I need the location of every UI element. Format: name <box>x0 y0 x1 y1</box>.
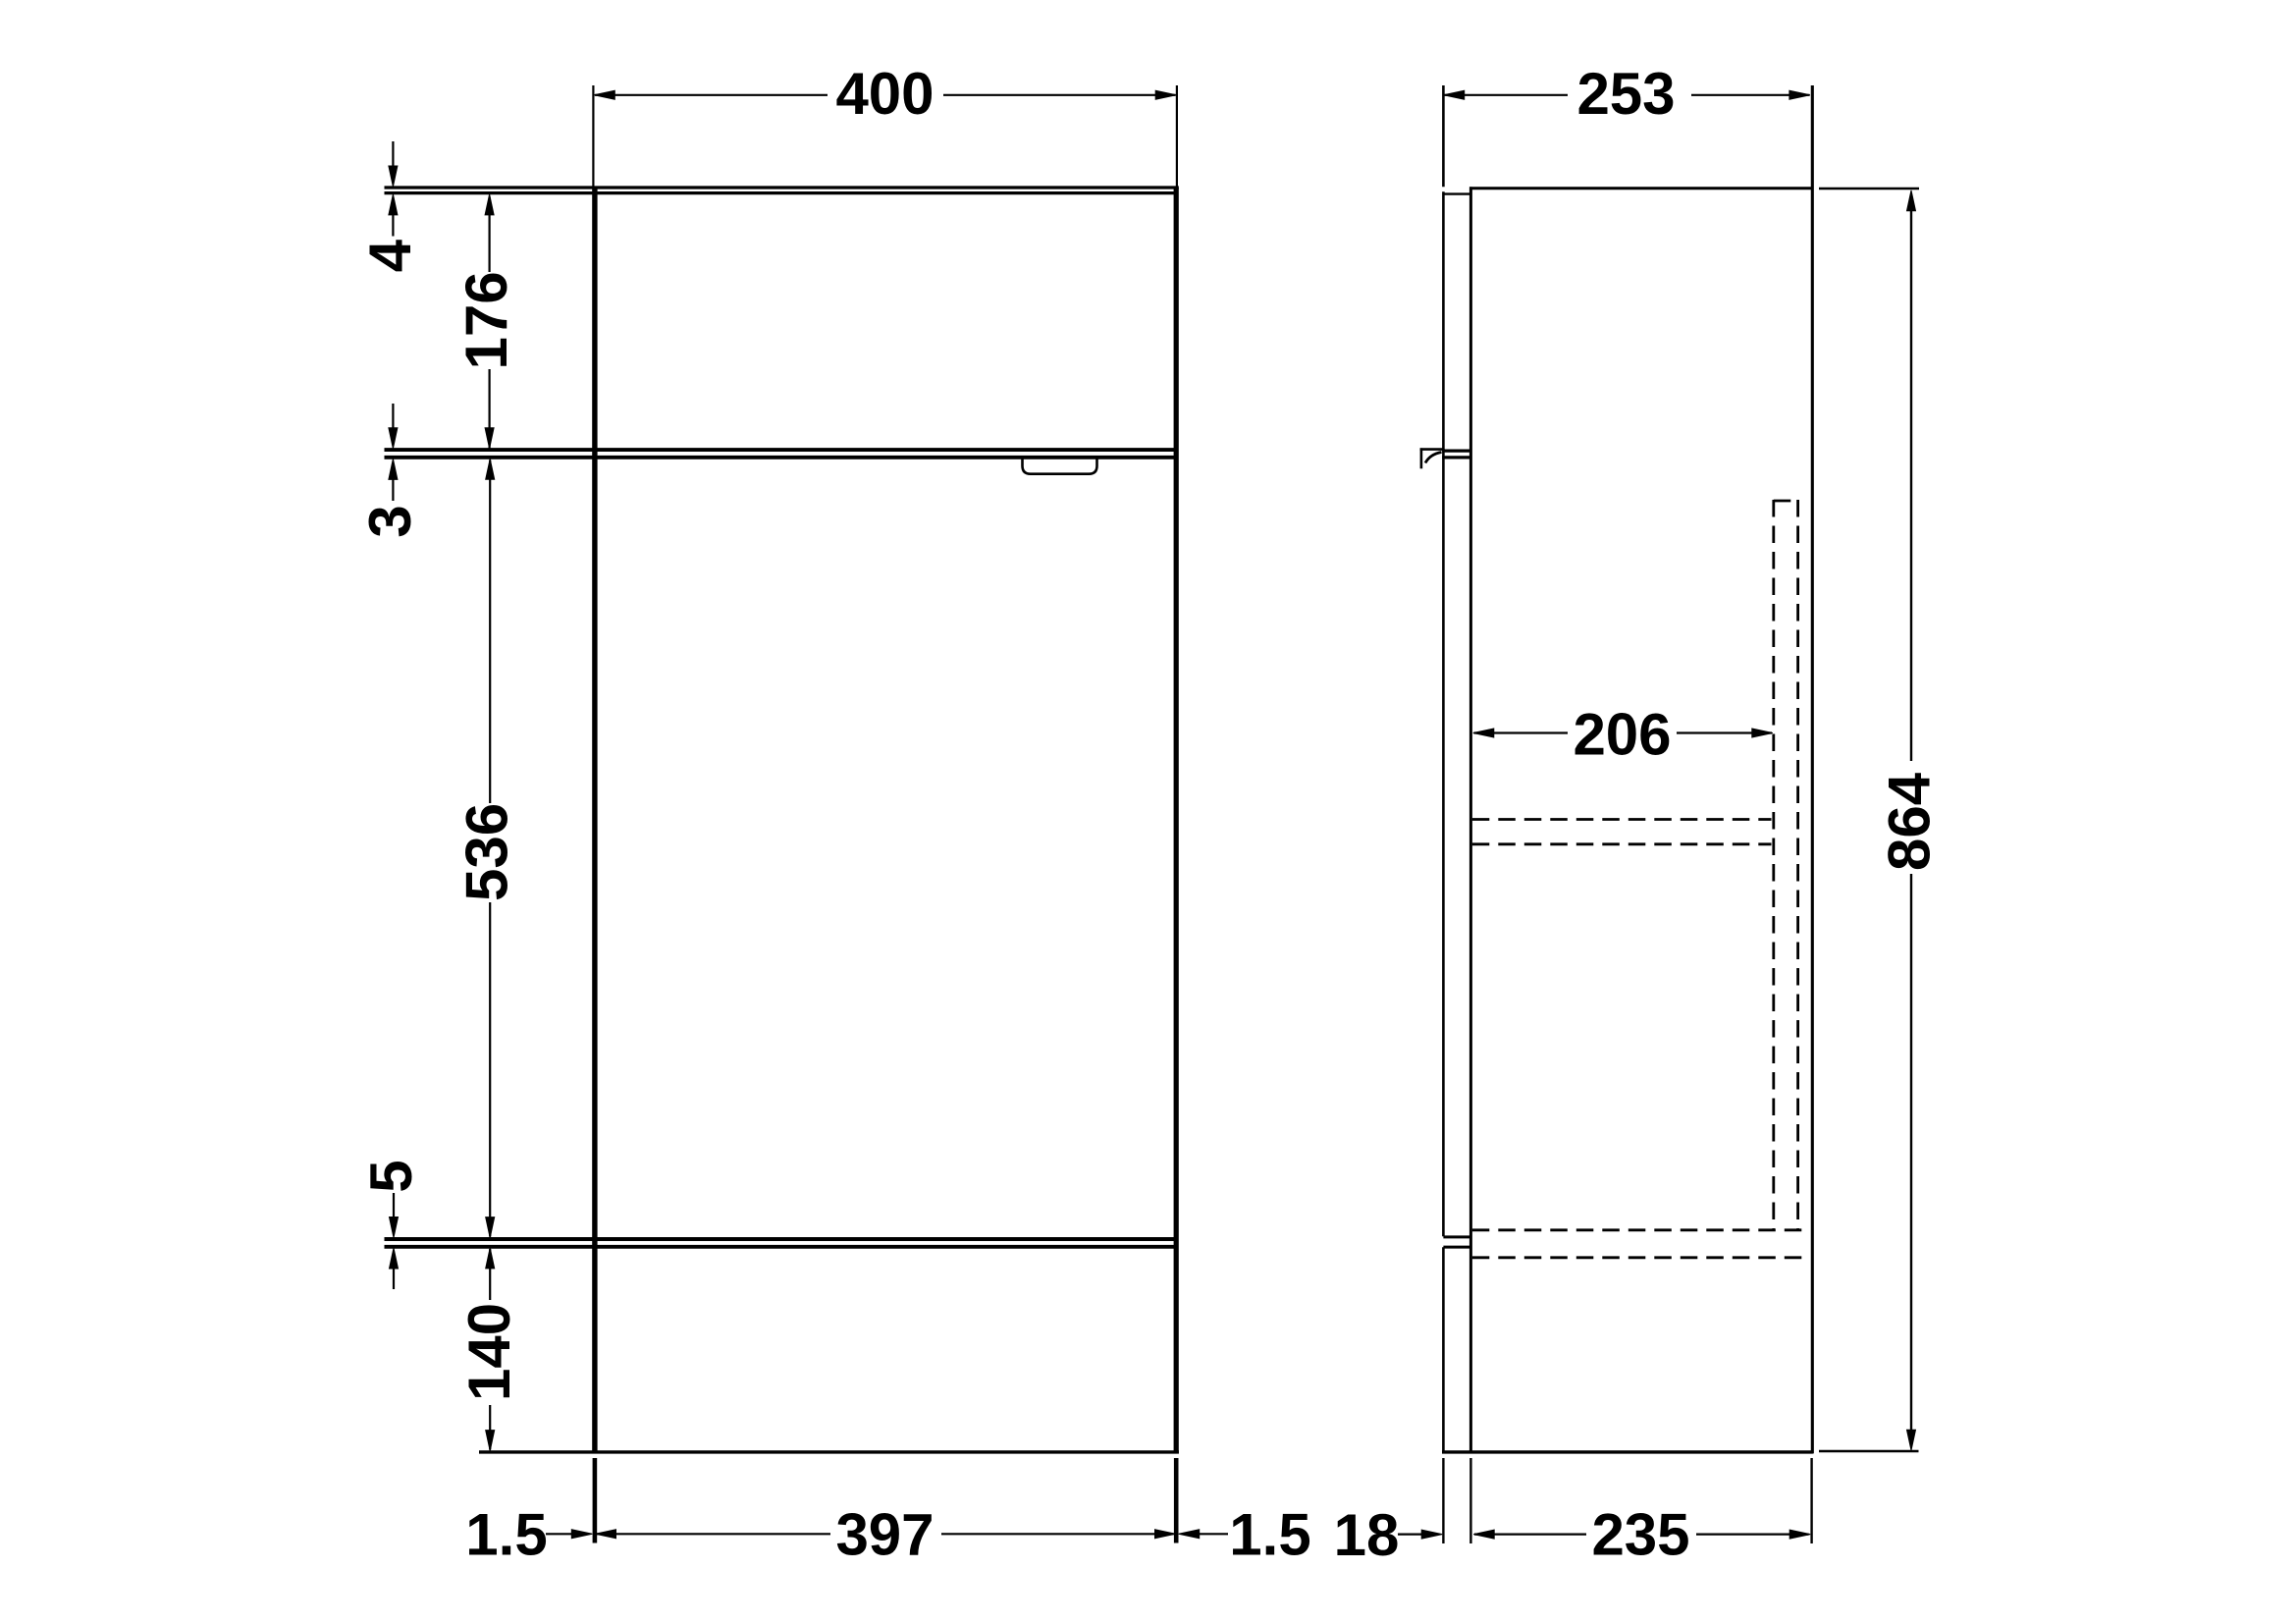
svg-text:140: 140 <box>456 1303 522 1401</box>
svg-text:1.5: 1.5 <box>1229 1502 1310 1568</box>
svg-text:206: 206 <box>1573 702 1671 768</box>
svg-text:397: 397 <box>835 1502 934 1568</box>
svg-text:864: 864 <box>1877 772 1943 871</box>
svg-text:4: 4 <box>357 239 423 272</box>
svg-text:253: 253 <box>1576 61 1675 127</box>
svg-text:5: 5 <box>358 1160 424 1192</box>
svg-text:3: 3 <box>357 505 423 537</box>
svg-text:1.5: 1.5 <box>465 1502 547 1568</box>
svg-text:235: 235 <box>1591 1502 1689 1568</box>
svg-text:536: 536 <box>454 803 520 901</box>
svg-text:176: 176 <box>454 271 519 369</box>
svg-text:18: 18 <box>1334 1502 1400 1568</box>
svg-text:400: 400 <box>835 61 934 127</box>
